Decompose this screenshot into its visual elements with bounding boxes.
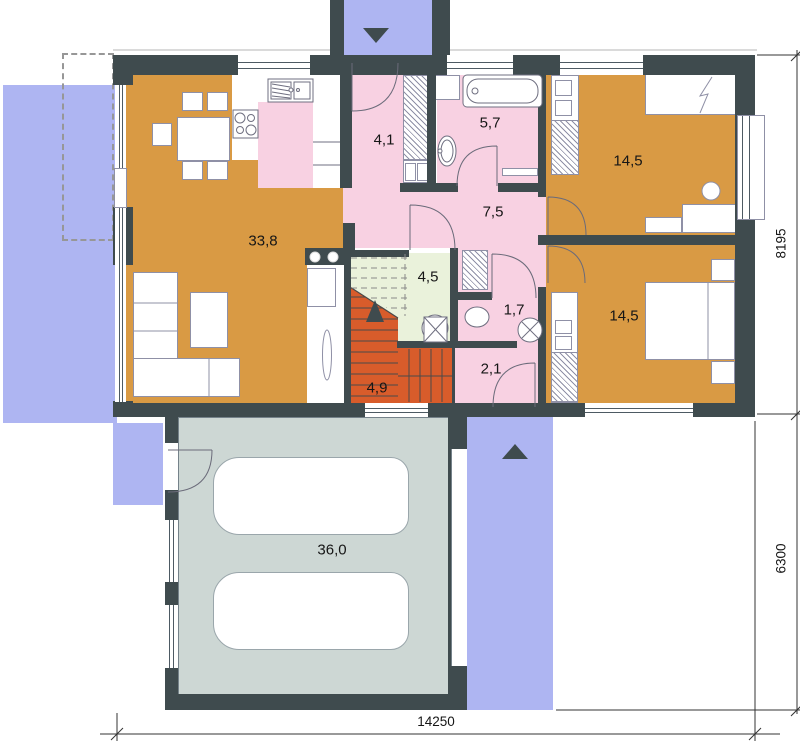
wall-bedroom-divider [538,235,755,245]
exterior-wall-left-seg [113,401,133,417]
room-label-vestibule: 2,1 [481,361,502,378]
driveway-arrow-icon [502,444,528,459]
bathroom-cabinet [433,75,460,100]
porch-wall-right [432,0,450,55]
dining-chair [207,161,228,180]
hall-floor [343,183,538,248]
exterior-wall-left-seg [113,55,133,85]
wardrobe-box [555,320,572,334]
pergola-outline [62,53,114,241]
entrance-arrow-icon [363,28,389,43]
window-bedroom-right [737,115,765,220]
terrace-area-small [113,423,163,505]
window-bedroom-bottom [585,403,693,417]
door-gap-bedroom-top [538,197,546,235]
shoe-box [405,163,416,181]
garage-wall-left-seg [165,490,178,520]
glass-wall-living [115,85,126,402]
kitchen-counter-top [232,75,340,102]
lobby-wardrobe [462,250,488,290]
room-label-storage: 4,5 [418,269,439,286]
room-label-bedroom-top: 14,5 [613,153,642,170]
window-bathroom [447,55,513,75]
room-label-living: 33,8 [248,233,277,250]
garage-side-door-gap [165,443,178,490]
dining-chair [182,161,203,180]
kitchen-stove-block [232,100,258,160]
dim-garage-depth: 6300 [774,529,789,589]
door-gap-bedroom-bottom [538,245,546,287]
coffee-table [190,292,228,348]
desk [682,204,736,233]
glass-door-frame [114,168,127,208]
dining-chair [182,92,203,111]
garage-window [165,520,178,582]
window-kitchen [238,55,310,75]
floor-plan: 33,8 4,1 5,7 14,5 7,5 4,5 1,7 14,5 2,1 4… [0,0,800,744]
room-label-garage: 36,0 [317,542,346,559]
car-outline [213,572,409,650]
wardrobe-box [555,80,572,96]
bathroom-shelf [502,168,538,176]
garage-door-line [448,449,451,666]
fireplace [307,268,336,307]
wall-storage-top [347,250,409,257]
kitchen-counter-side [313,100,340,188]
wall-entry-bathroom [427,75,436,183]
room-label-stairs: 4,9 [367,380,388,397]
dresser [645,217,682,233]
room-label-wc: 1,7 [504,302,525,319]
bed-single [645,74,736,115]
garage-pier-right-top [448,417,467,449]
exterior-wall-top [113,55,755,75]
wardrobe-top-hatch [551,120,579,175]
room-label-entry: 4,1 [374,132,395,149]
garage-house-door [365,403,428,417]
kitchen-floor [258,100,313,188]
garage-wall-left-seg [165,417,178,443]
wardrobe-box [555,100,572,116]
wall-living-stairs [344,255,351,403]
dining-chair [152,123,172,146]
wall-bathroom-hall [400,183,458,192]
room-label-bedroom-bottom: 14,5 [609,308,638,325]
window-bedroom-top [560,55,643,75]
garage-wall-left-seg [165,582,178,605]
wall-kitchen-entry [340,75,352,188]
garage-window [165,605,178,668]
bed-double [645,282,735,360]
wall-wc-top [455,292,492,300]
dim-total-width: 14250 [396,714,476,729]
car-outline [213,457,409,535]
garage-wall-bottom [165,694,467,710]
porch-wall-left [330,0,344,55]
wardrobe-box [555,336,572,350]
entry-wardrobe [403,75,430,160]
wall-wc-bottom [397,341,517,348]
nightstand [711,361,735,384]
dining-table [177,117,230,161]
room-label-hall: 7,5 [483,204,504,221]
chimney-block [305,248,345,265]
sofa-horizontal [133,358,240,397]
wall-stairs-vestibule [452,348,455,403]
room-label-bathroom: 5,7 [480,115,501,132]
wardrobe-bottom-hatch [551,352,578,402]
garage-pier-right-bottom [448,666,467,710]
dim-house-depth: 8195 [774,214,789,274]
nightstand [711,259,735,281]
stairs-lower-flight [398,348,452,403]
dining-chair [207,92,228,111]
